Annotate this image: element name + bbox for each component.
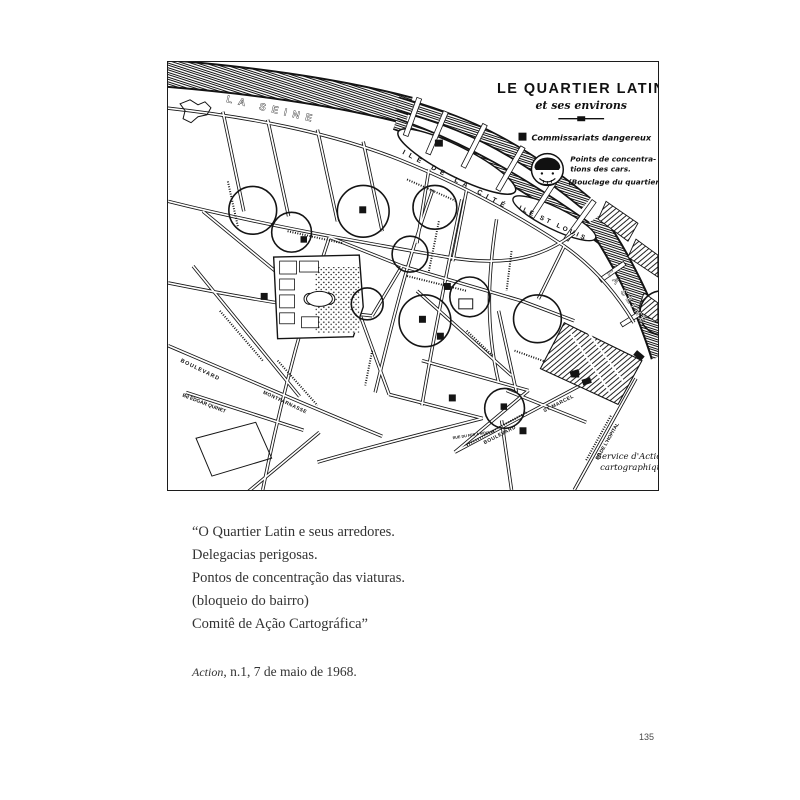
title-divider-icon (558, 116, 604, 121)
source-details: , n.1, 7 de maio de 1968. (223, 664, 356, 679)
legend: Commissariats dangereux Points de concen… (519, 133, 658, 187)
caption-line: Delegacias perigosas. (192, 544, 532, 567)
map-subtitle: et ses environs (535, 99, 627, 112)
quartier-latin-map: LA SEINE LA SEINE ILE DE LA CITÉ ILE ST … (168, 62, 658, 490)
legend-square-icon (519, 133, 527, 141)
map-title-block: LE QUARTIER LATIN et ses environs (497, 81, 658, 121)
caption-line: Comitê de Ação Cartográfica” (192, 613, 532, 636)
map-figure: LA SEINE LA SEINE ILE DE LA CITÉ ILE ST … (167, 61, 659, 491)
boulevard-left-label: BOULEVARD (179, 358, 220, 382)
street-network (168, 108, 636, 490)
credit-line1: Service d'Action (596, 452, 658, 462)
legend-points-line2: tions des cars. (570, 164, 631, 173)
page-number: 135 (630, 732, 654, 742)
map-credit: Service d'Action cartographique (596, 452, 658, 473)
legend-points-line3: (Bouclage du quartier) (568, 177, 658, 186)
legend-points-line1: Points de concentra- (570, 155, 656, 164)
caption-line: “O Quartier Latin e seus arredores. (192, 521, 532, 544)
map-title: LE QUARTIER LATIN (497, 81, 658, 97)
legend-commissariats-label: Commissariats dangereux (531, 133, 651, 143)
credit-line2: cartographique (600, 463, 658, 473)
luxembourg-garden (274, 255, 364, 339)
figure-caption: “O Quartier Latin e seus arredores. Dele… (192, 521, 532, 684)
caption-line: Pontos de concentração das viaturas. (192, 567, 532, 590)
source-journal-title: Action (192, 665, 223, 679)
police-head-icon (531, 154, 563, 186)
caption-line: (bloqueio do bairro) (192, 590, 532, 613)
caption-source: Action, n.1, 7 de maio de 1968. (192, 660, 532, 684)
